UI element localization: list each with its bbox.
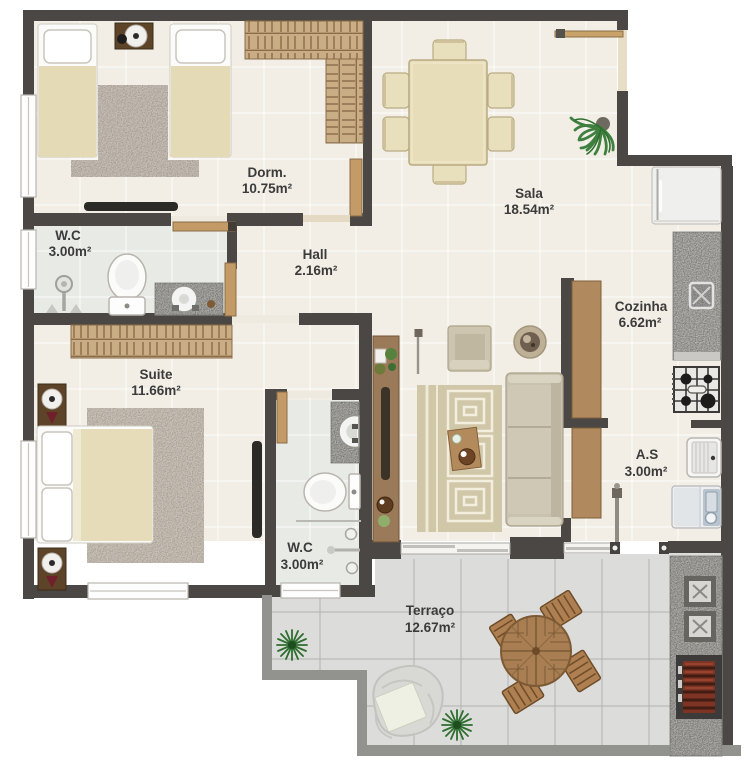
svg-text:18.54m²: 18.54m² xyxy=(504,202,555,217)
svg-text:W.C: W.C xyxy=(287,540,313,555)
svg-text:11.66m²: 11.66m² xyxy=(131,383,181,398)
svg-text:A.S: A.S xyxy=(636,447,659,462)
svg-text:6.62m²: 6.62m² xyxy=(619,315,662,330)
svg-text:3.00m²: 3.00m² xyxy=(49,244,92,259)
svg-text:2.16m²: 2.16m² xyxy=(295,263,338,278)
svg-text:Terraço: Terraço xyxy=(406,603,455,618)
svg-text:Cozinha: Cozinha xyxy=(615,299,668,314)
svg-text:3.00m²: 3.00m² xyxy=(281,557,324,572)
svg-text:Hall: Hall xyxy=(303,247,328,262)
svg-text:12.67m²: 12.67m² xyxy=(405,620,456,635)
svg-text:Dorm.: Dorm. xyxy=(247,165,286,180)
svg-text:Suite: Suite xyxy=(139,367,172,382)
svg-text:Sala: Sala xyxy=(515,186,543,201)
svg-text:W.C: W.C xyxy=(55,228,81,243)
svg-text:10.75m²: 10.75m² xyxy=(242,181,293,196)
svg-text:3.00m²: 3.00m² xyxy=(625,464,668,479)
